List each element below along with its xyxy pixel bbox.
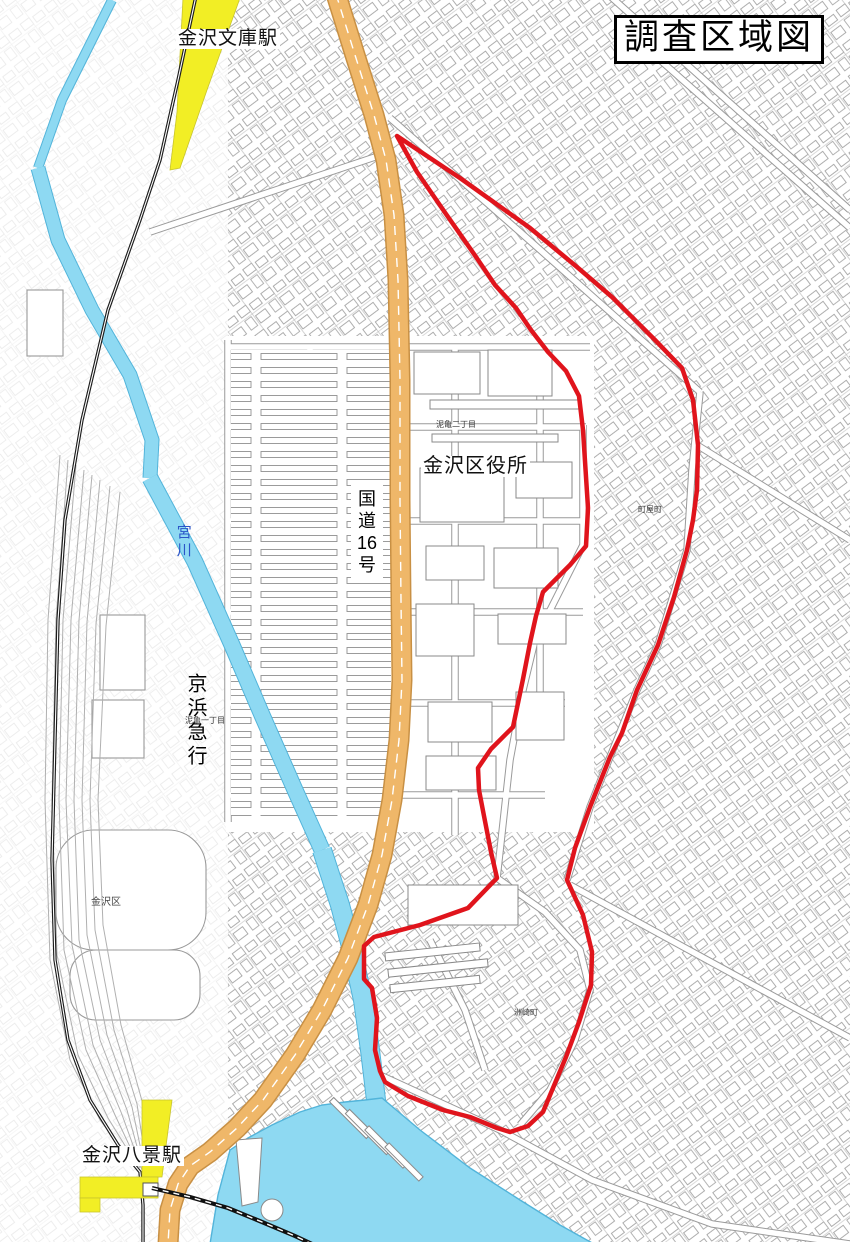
label-kanazawa-ward-office: 金沢区役所 xyxy=(421,456,530,477)
map-title: 調査区域図 xyxy=(624,18,814,57)
label-deiki-1chome: 泥亀一丁目 xyxy=(185,717,225,725)
apartment-rows xyxy=(231,350,391,816)
label-kanazawa-hakkei-station: 金沢八景駅 xyxy=(80,1146,184,1166)
route16-char-dou: 道 xyxy=(358,510,376,532)
label-kanazawa-bunko-station: 金沢文庫駅 xyxy=(176,29,280,49)
map-canvas xyxy=(0,0,850,1242)
route16-char-koku: 国 xyxy=(358,488,376,510)
map-title-box: 調査区域図 xyxy=(614,15,824,64)
route16-char-16: 16 xyxy=(357,532,377,554)
label-deiki-2chome: 泥亀二丁目 xyxy=(436,421,476,429)
label-machiya-cho: 町屋町 xyxy=(638,506,662,514)
label-miyagawa-river: 宮川 xyxy=(175,524,191,560)
route16-char-gou: 号 xyxy=(358,554,376,576)
survey-area-map: 調査区域図 金沢文庫駅 金沢区役所 国 道 16 号 京浜急行 宮川 金沢八景駅… xyxy=(0,0,850,1242)
label-route16: 国 道 16 号 xyxy=(351,485,383,579)
label-kanazawa-ku: 金沢区 xyxy=(91,898,121,909)
label-susaki-cho: 洲崎町 xyxy=(514,1009,538,1017)
